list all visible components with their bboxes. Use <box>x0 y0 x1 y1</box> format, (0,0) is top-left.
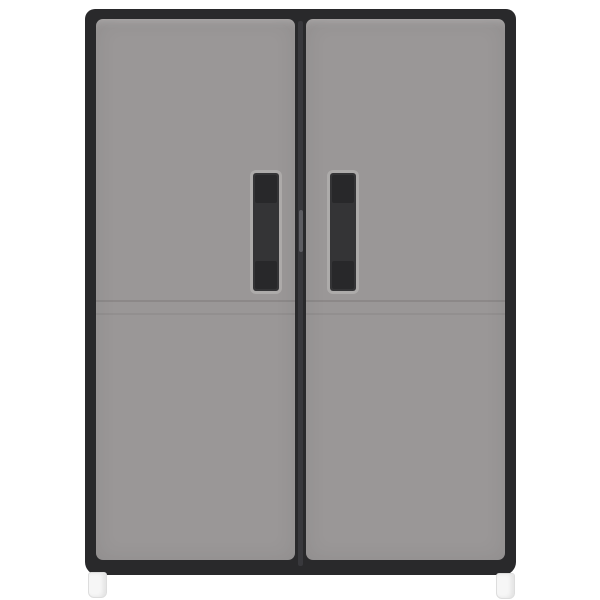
door-right-seam-upper <box>306 300 505 302</box>
handle-stitch-patch <box>255 261 277 289</box>
door-right-handle <box>330 173 356 291</box>
handle-stitch-patch <box>255 175 277 203</box>
wardrobe-door-right <box>306 19 505 560</box>
handle-stitch-patch <box>332 175 354 203</box>
handle-stitch-patch <box>332 261 354 289</box>
center-zipper-track <box>298 21 303 566</box>
door-left-seam-lower <box>96 313 295 315</box>
wardrobe-foot-left <box>88 572 107 598</box>
center-zipper-pull <box>299 210 303 252</box>
product-photo <box>0 0 600 600</box>
wardrobe-door-left <box>96 19 295 560</box>
wardrobe-foot-right <box>496 573 515 599</box>
door-left-handle <box>253 173 279 291</box>
door-left-seam-upper <box>96 300 295 302</box>
wardrobe-body <box>85 9 516 575</box>
door-right-seam-lower <box>306 313 505 315</box>
